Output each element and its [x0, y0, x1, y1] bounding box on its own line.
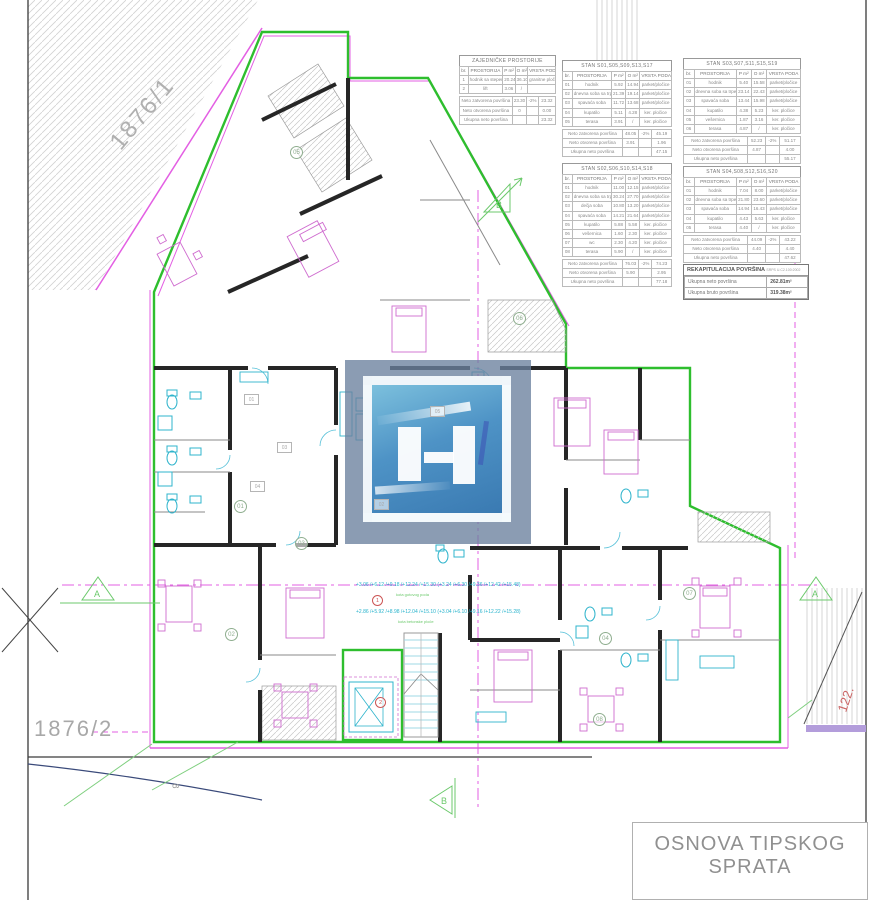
table-title: STAN S04,S08,S12,S16,S20	[683, 166, 801, 177]
table-cell: vešernica	[572, 229, 611, 238]
table-cell: 23.60	[751, 196, 766, 205]
staircase	[404, 633, 438, 737]
table-cell: 19.14	[626, 90, 640, 99]
table-col-header: O m²	[626, 72, 640, 81]
room-tag: 05	[430, 406, 445, 417]
table-footer-row: Neto zatvorena površina44.09-2%43.22	[684, 235, 801, 244]
table-cell: 14.94	[626, 81, 640, 90]
table-footer-cell: 23.30	[512, 97, 526, 106]
table-footer-row: Neto otvorena površina5.902.95	[563, 268, 672, 277]
table-apartment-s04: STAN S04,S08,S12,S16,S20br.PROSTORIJAP m…	[683, 166, 801, 263]
table-row: 02dnevna soba sa trpezarijom21.3919.14pa…	[563, 90, 672, 99]
table-cell	[528, 85, 556, 94]
table-cell: /	[515, 85, 527, 94]
area-table: br.PROSTORIJAP m²O m²VRSTA PODA1hodnik s…	[459, 66, 556, 94]
table-footer-row: Neto otvorena površina4.874.00	[684, 145, 801, 154]
level-annotation-2: +2.86 /+5.92 /+8.98 /+12.04 /+15.10 (+3.…	[356, 609, 521, 615]
table-cell: 06	[563, 229, 573, 238]
table-footer-row: Neto zatvorena površina23.30-2%23.32	[460, 97, 556, 106]
table-col-header: O m²	[626, 175, 640, 184]
table-footer-cell: Neto otvorena površina	[563, 268, 623, 277]
table-footer-row: Neto otvorena površina00.00	[460, 106, 556, 115]
level-annotation-2-sub: kota betonske ploče	[398, 619, 434, 624]
apartment-tag: 07	[683, 587, 696, 600]
table-row: 05kupatilo5.885.58ker. pločice	[563, 220, 672, 229]
table-cell: 06	[684, 124, 695, 133]
table-footer-cell	[765, 244, 779, 253]
section-marker-a-left: A	[60, 577, 160, 603]
table-footer-cell: -2%	[639, 129, 652, 138]
table-footer-cell: Neto otvorena površina	[460, 106, 513, 115]
table-row: 04kupatilo4.435.63ker. pločice	[684, 214, 801, 223]
table-cell: parket/pločice	[640, 184, 672, 193]
table-cell: 01	[563, 81, 573, 90]
table-col-header: P m²	[503, 67, 515, 76]
table-cell: granitne ploče	[528, 76, 556, 85]
table-footer-cell: 4.87	[748, 145, 766, 154]
table-row: 01hodnik7.048.00parket/pločice	[684, 187, 801, 196]
section-a-left-label: A	[94, 589, 100, 599]
table-cell: 2	[460, 85, 469, 94]
table-cell: dnevna soba sa trpezarijom	[694, 88, 736, 97]
area-table: br.PROSTORIJAP m²O m²VRSTA PODA01hodnik5…	[683, 69, 801, 134]
table-common-areas: ZAJEDNIČKE PROSTORIJEbr.PROSTORIJAP m²O …	[459, 55, 556, 125]
table-footer-cell: 3.91	[622, 138, 638, 147]
table-title: ZAJEDNIČKE PROSTORIJE	[459, 55, 556, 66]
drawing-title: OSNOVA TIPSKOG SPRATA	[633, 833, 867, 879]
area-table: br.PROSTORIJAP m²O m²VRSTA PODA01hodnik1…	[562, 174, 672, 257]
table-row: 08terasa5.90/ker. pločice	[563, 247, 672, 256]
apartment-tag: 03	[295, 537, 308, 550]
north-mark: 8	[171, 783, 181, 788]
table-cell: ker. pločice	[640, 229, 672, 238]
table-footer-cell: 55.17	[779, 154, 800, 163]
table-row: 1hodnik sa stepeništem20.2436.10granitne…	[460, 76, 556, 85]
table-row: 04kupatilo5.114.28ker. pločice	[563, 108, 672, 117]
table-footer-cell: Neto zatvorena površina	[684, 136, 748, 145]
table-footer-cell	[765, 253, 779, 262]
section-b-bottom-label: B	[441, 796, 447, 806]
table-footer-cell	[639, 147, 652, 156]
table-cell: 4.28	[626, 108, 640, 117]
logo-bar-right	[453, 426, 475, 484]
table-cell: ker. pločice	[640, 117, 672, 126]
table-col-header: br.	[684, 70, 695, 79]
table-footer-cell: -2%	[639, 259, 652, 268]
table-cell: hodnik	[694, 79, 736, 88]
recap-standard: SRPS U.C2.100:2002	[766, 268, 800, 272]
table-row: 05terasa4.40/ker. pločice	[684, 223, 801, 232]
table-cell: 13.68	[626, 99, 640, 108]
section-marker-b-top: B	[478, 178, 522, 222]
table-cell: 20.24	[503, 76, 515, 85]
table-cell: kupatilo	[694, 214, 736, 223]
table-row: 02dnevna soba sa trpezarijom23.1422.43pa…	[684, 88, 801, 97]
table-cell: ker. pločice	[640, 238, 672, 247]
table-footer-row: Ukupna neto površina55.17	[684, 154, 801, 163]
table-col-header: VRSTA PODA	[767, 70, 801, 79]
table-row: 02dnevna soba sa trpezarijom30.2427.70pa…	[563, 193, 672, 202]
table-cell: 02	[684, 88, 695, 97]
table-apartment-s02: STAN S02,S06,S10,S14,S18br.PROSTORIJAP m…	[562, 163, 672, 287]
table-cell: ker. pločice	[640, 108, 672, 117]
table-footer-cell: 1.96	[652, 138, 672, 147]
logo-swoosh-top	[377, 402, 471, 425]
table-cell: 5.88	[612, 220, 626, 229]
table-footer-cell: Ukupna neto površina	[563, 277, 623, 286]
table-cell: 05	[563, 117, 573, 126]
table-row: 01hodnik5.9214.94parket/pločice	[563, 81, 672, 90]
section-marker-b-bottom: B	[430, 778, 455, 818]
table-cell: 5.58	[626, 220, 640, 229]
table-footer-cell: Ukupna neto površina	[563, 147, 623, 156]
table-cell: 13.20	[626, 202, 640, 211]
table-cell: dečja soba	[572, 202, 611, 211]
table-col-header: P m²	[736, 178, 751, 187]
table-cell: 01	[684, 79, 695, 88]
area-table: br.PROSTORIJAP m²O m²VRSTA PODA01hodnik5…	[562, 71, 672, 127]
table-row: 06vešernica1.602.30ker. pločice	[563, 229, 672, 238]
table-col-header: O m²	[751, 178, 766, 187]
table-row: 2lift3.06/	[460, 85, 556, 94]
table-row: 07wc2.304.20ker. pločice	[563, 238, 672, 247]
table-footer-cell: Neto otvorena površina	[684, 244, 748, 253]
recap-label: Ukupna neto površina	[685, 277, 767, 288]
table-footer-cell: 47.15	[652, 147, 672, 156]
table-cell: hodnik	[572, 81, 611, 90]
table-footer-cell	[748, 253, 766, 262]
table-footer-cell	[639, 138, 652, 147]
table-cell: 3.91	[612, 117, 626, 126]
table-row: 05vešernica1.873.16ker. pločice	[684, 115, 801, 124]
table-row: 03dečja soba10.8013.20parket/pločice	[563, 202, 672, 211]
table-footer-cell: -2%	[765, 136, 779, 145]
table-row: 03spavaća soba14.9416.43parket/pločice	[684, 205, 801, 214]
table-title: STAN S03,S07,S11,S15,S19	[683, 58, 801, 69]
logo-swoosh-bottom	[374, 481, 450, 494]
table-col-header: br.	[684, 178, 695, 187]
table-footer-cell: Neto zatvorena površina	[563, 259, 623, 268]
table-cell: terasa	[572, 247, 611, 256]
table-cell: 2.30	[612, 238, 626, 247]
apartment-tag: 08	[593, 713, 606, 726]
table-col-header: br.	[460, 67, 469, 76]
elevator	[344, 677, 398, 737]
table-cell: 03	[563, 99, 573, 108]
table-row: 02dnevna soba sa trpezarijom21.8023.60pa…	[684, 196, 801, 205]
table-cell: 5.63	[751, 214, 766, 223]
table-cell: 12.15	[626, 184, 640, 193]
table-cell: 07	[563, 238, 573, 247]
table-cell: 15.58	[751, 79, 766, 88]
table-footer-cell: 47.62	[779, 253, 800, 262]
table-cell: 05	[684, 115, 695, 124]
room-tag: 01	[244, 394, 259, 405]
table-footer-cell: Ukupna neto površina	[460, 115, 513, 124]
table-cell: 5.92	[612, 81, 626, 90]
table-row: 01hodnik11.0012.15parket/pločice	[563, 184, 672, 193]
table-cell: ker. pločice	[767, 115, 801, 124]
table-cell: ker. pločice	[767, 214, 801, 223]
apartment-tag: 05	[290, 146, 303, 159]
table-cell: parket/pločice	[767, 97, 801, 106]
table-cell: 4.87	[736, 124, 751, 133]
table-footer-cell	[639, 277, 652, 286]
table-footer-cell: 23.32	[538, 115, 555, 124]
table-footer-cell: Ukupna neto površina	[684, 154, 748, 163]
recap-label: Ukupna bruto površina	[685, 288, 767, 299]
table-cell: spavaća soba	[694, 205, 736, 214]
table-footer: Neto zatvorena površina23.30-2%23.32Neto…	[459, 96, 556, 124]
table-cell: 13.44	[736, 97, 751, 106]
table-cell: 11.72	[612, 99, 626, 108]
table-cell: 1.87	[736, 115, 751, 124]
table-row: 04spavaća soba14.2121.64parket/pločice	[563, 211, 672, 220]
table-cell: 1	[460, 76, 469, 85]
table-cell: 11.00	[612, 184, 626, 193]
table-cell: /	[751, 124, 766, 133]
table-cell: parket/pločice	[767, 88, 801, 97]
table-footer-cell	[748, 154, 766, 163]
table-cell: parket/pločice	[640, 99, 672, 108]
table-cell: 4.43	[736, 214, 751, 223]
table-footer-cell: 74.23	[652, 259, 672, 268]
level-annotation-1: +3.06 /+6.12 /+9.18 /+12.24 /+15.30 (+3.…	[356, 582, 521, 588]
table-footer-cell	[527, 115, 539, 124]
table-col-header: O m²	[515, 67, 527, 76]
table-footer-row: Neto zatvorena površina52.23-2%51.17	[684, 136, 801, 145]
section-a-right-label: A	[812, 589, 818, 599]
table-cell: 3.06	[503, 85, 515, 94]
table-cell: parket/pločice	[640, 81, 672, 90]
logo-bar-middle	[424, 452, 454, 464]
table-cell: 10.80	[612, 202, 626, 211]
section-b-top-label: B	[496, 200, 502, 210]
table-cell: lift	[468, 85, 503, 94]
table-cell: hodnik	[694, 187, 736, 196]
table-cell: 21.39	[612, 90, 626, 99]
table-cell: spavaća soba	[572, 211, 611, 220]
table-cell: 27.70	[626, 193, 640, 202]
table-cell: 5.90	[612, 247, 626, 256]
table-footer-cell: 43.22	[779, 235, 800, 244]
table-cell: parket/pločice	[640, 193, 672, 202]
table-title: STAN S01,S05,S09,S13,S17	[562, 60, 672, 71]
table-apartment-s03: STAN S03,S07,S11,S15,S19br.PROSTORIJAP m…	[683, 58, 801, 164]
table-cell: 23.14	[736, 88, 751, 97]
table-cell: ker. pločice	[767, 106, 801, 115]
table-footer-cell: 23.32	[538, 97, 555, 106]
table-cell: kupatilo	[572, 108, 611, 117]
table-cell: terasa	[694, 223, 736, 232]
table-row: 03spavaća soba11.7213.68parket/pločice	[563, 99, 672, 108]
table-col-header: br.	[563, 72, 573, 81]
table-footer: Neto zatvorena površina76.03-2%74.23Neto…	[562, 259, 672, 287]
table-cell: parket/pločice	[767, 196, 801, 205]
table-footer-cell	[527, 106, 539, 115]
table-col-header: VRSTA PODA	[528, 67, 556, 76]
table-title: STAN S02,S06,S10,S14,S18	[562, 163, 672, 174]
table-cell: 04	[684, 214, 695, 223]
table-cell: 02	[563, 90, 573, 99]
table-footer-cell: 77.18	[652, 277, 672, 286]
table-cell: hodnik sa stepeništem	[468, 76, 503, 85]
table-cell: 7.04	[736, 187, 751, 196]
table-col-header: PROSTORIJA	[572, 175, 611, 184]
table-col-header: br.	[563, 175, 573, 184]
survey-cross	[2, 588, 58, 652]
table-cell: ker. pločice	[640, 220, 672, 229]
table-footer: Neto zatvorena površina44.09-2%43.22Neto…	[683, 235, 801, 263]
apartment-tag: 04	[599, 632, 612, 645]
table-cell: vešernica	[694, 115, 736, 124]
recap-value: 319.38m²	[767, 288, 808, 299]
table-footer-cell: 0.00	[538, 106, 555, 115]
table-cell: parket/pločice	[767, 205, 801, 214]
table-footer-cell: -2%	[765, 235, 779, 244]
table-footer-cell	[765, 154, 779, 163]
table-cell: 15.98	[751, 97, 766, 106]
table-footer-cell: Neto otvorena površina	[563, 138, 623, 147]
table-footer-cell: 48.05	[622, 129, 638, 138]
entrance-tag: 2	[375, 697, 386, 708]
table-cell: dnevna soba sa trpezarijom	[572, 193, 611, 202]
table-cell: 21.64	[626, 211, 640, 220]
table-cell: 03	[684, 97, 695, 106]
table-cell: 01	[684, 187, 695, 196]
level-annotation-1-sub: kota gotovog poda	[396, 592, 429, 597]
table-footer-row: Ukupna neto površina47.62	[684, 253, 801, 262]
table-cell: 01	[563, 184, 573, 193]
table-col-header: P m²	[612, 175, 626, 184]
table-cell: 8.00	[751, 187, 766, 196]
table-col-header: PROSTORIJA	[694, 178, 736, 187]
table-footer: Neto zatvorena površina52.23-2%51.17Neto…	[683, 136, 801, 164]
table-cell: wc	[572, 238, 611, 247]
room-tag: 03	[277, 442, 292, 453]
table-cell: parket/pločice	[640, 211, 672, 220]
table-cell: 14.21	[612, 211, 626, 220]
table-cell: 14.94	[736, 205, 751, 214]
table-cell: 5.23	[751, 106, 766, 115]
table-cell: 30.24	[612, 193, 626, 202]
table-cell: 16.43	[751, 205, 766, 214]
table-footer-cell: 45.19	[652, 129, 672, 138]
table-cell: 5.11	[612, 108, 626, 117]
table-cell: hodnik	[572, 184, 611, 193]
table-col-header: PROSTORIJA	[572, 72, 611, 81]
table-footer-cell: 52.23	[748, 136, 766, 145]
table-footer-row: Ukupna neto površina23.32	[460, 115, 556, 124]
table-footer-cell	[639, 268, 652, 277]
table-footer-cell: Neto zatvorena površina	[684, 235, 748, 244]
table-footer-cell: -2%	[527, 97, 539, 106]
table-cell: 4.38	[736, 106, 751, 115]
area-table: br.PROSTORIJAP m²O m²VRSTA PODA01hodnik7…	[683, 177, 801, 233]
table-cell: 02	[684, 196, 695, 205]
table-footer-cell: 44.09	[748, 235, 766, 244]
apartment-tag: 02	[225, 628, 238, 641]
table-footer-cell: 2.95	[652, 268, 672, 277]
table-cell: 1.60	[612, 229, 626, 238]
table-cell: 05	[684, 223, 695, 232]
table-cell: 04	[563, 211, 573, 220]
table-cell: terasa	[694, 124, 736, 133]
table-cell: 08	[563, 247, 573, 256]
table-cell: spavaća soba	[572, 99, 611, 108]
table-row: 03spavaća soba13.4415.98parket/pločice	[684, 97, 801, 106]
table-col-header: VRSTA PODA	[640, 175, 672, 184]
table-apartment-s01: STAN S01,S05,S09,S13,S17br.PROSTORIJAP m…	[562, 60, 672, 157]
table-cell: 03	[684, 205, 695, 214]
table-footer-cell: 0	[512, 106, 526, 115]
table-col-header: PROSTORIJA	[694, 70, 736, 79]
table-cell: 04	[563, 108, 573, 117]
table-footer-cell: 4.40	[779, 244, 800, 253]
room-tag: 02	[374, 499, 389, 510]
table-footer-cell: Neto zatvorena površina	[563, 129, 623, 138]
table-cell: /	[751, 223, 766, 232]
apartment-tag: 01	[234, 500, 247, 513]
table-cell: 03	[563, 202, 573, 211]
table-cell: parket/pločice	[640, 90, 672, 99]
title-block: OSNOVA TIPSKOG SPRATA	[632, 822, 868, 900]
table-cell: ker. pločice	[767, 223, 801, 232]
table-cell: kupatilo	[694, 106, 736, 115]
room-tag: 04	[250, 481, 265, 492]
parcel-number-lower: 1876/2	[34, 716, 113, 742]
recap-table: REKAPITULACIJA POVRŠINA SRPS U.C2.100:20…	[683, 264, 809, 300]
table-cell: parket/pločice	[640, 202, 672, 211]
table-footer-row: Neto otvorena površina3.911.96	[563, 138, 672, 147]
table-footer-cell: Ukupna neto površina	[684, 253, 748, 262]
recap-row: Ukupna neto površina 262.81m²	[685, 277, 808, 288]
table-col-header: P m²	[612, 72, 626, 81]
table-footer-cell	[512, 115, 526, 124]
table-col-header: P m²	[736, 70, 751, 79]
table-row: 06terasa4.87/ker. pločice	[684, 124, 801, 133]
table-footer-cell: 4.00	[779, 145, 800, 154]
table-footer-cell: 4.40	[748, 244, 766, 253]
road-band	[806, 725, 866, 732]
table-footer: Neto zatvorena površina48.05-2%45.19Neto…	[562, 129, 672, 157]
table-footer-cell: 76.03	[622, 259, 638, 268]
table-row: 04kupatilo4.385.23ker. pločice	[684, 106, 801, 115]
table-footer-cell: Neto zatvorena površina	[460, 97, 513, 106]
table-footer-row: Neto zatvorena površina48.05-2%45.19	[563, 129, 672, 138]
table-cell: 4.20	[626, 238, 640, 247]
table-cell: parket/pločice	[767, 187, 801, 196]
table-col-header: O m²	[751, 70, 766, 79]
recap-value: 262.81m²	[767, 277, 808, 288]
table-cell: 04	[684, 106, 695, 115]
logo-bar-left	[398, 427, 421, 481]
site-lines-bottom	[28, 742, 262, 806]
table-cell: ker. pločice	[640, 247, 672, 256]
table-footer-cell	[622, 147, 638, 156]
recap-row: Ukupna bruto površina 319.38m²	[685, 288, 808, 299]
table-cell: 5.40	[736, 79, 751, 88]
table-cell: parket/pločice	[767, 79, 801, 88]
table-cell: 3.16	[751, 115, 766, 124]
table-cell: 4.40	[736, 223, 751, 232]
table-cell: 21.80	[736, 196, 751, 205]
table-cell: /	[626, 117, 640, 126]
table-cell: 2.30	[626, 229, 640, 238]
table-cell: dnevna soba sa trpezarijom	[572, 90, 611, 99]
logo-sliver	[478, 421, 489, 465]
table-footer-cell	[622, 277, 638, 286]
